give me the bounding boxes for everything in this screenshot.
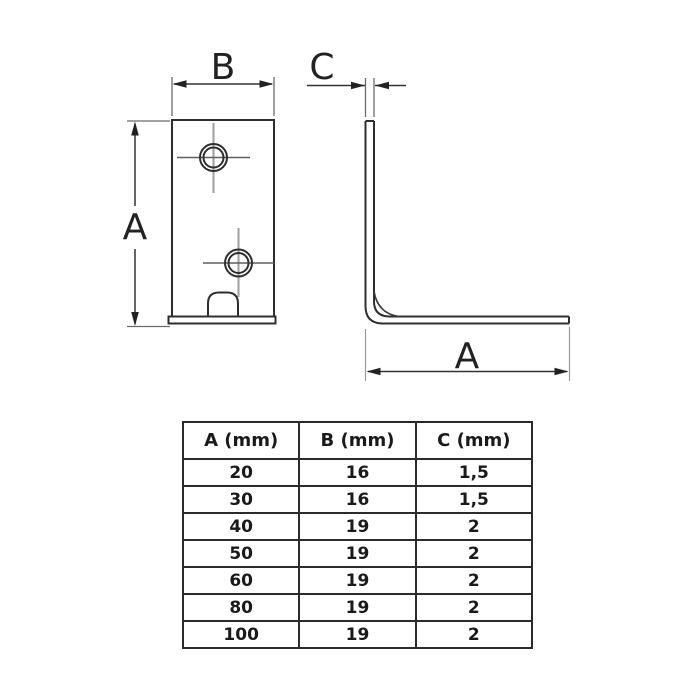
table-row: 80192 xyxy=(183,594,532,621)
table-cell: 19 xyxy=(299,513,415,540)
side-profile-inner xyxy=(374,121,569,317)
dim-c-arrow-left-icon xyxy=(351,82,365,89)
dim-b-label: B xyxy=(211,47,236,88)
table-row: 30161,5 xyxy=(183,486,532,513)
table-cell: 40 xyxy=(183,513,299,540)
table-cell: 19 xyxy=(299,594,415,621)
front-view xyxy=(169,120,276,324)
front-tab-outline xyxy=(208,293,238,317)
table-cell: 2 xyxy=(416,540,532,567)
table-cell: 20 xyxy=(183,459,299,486)
side-view xyxy=(366,121,570,324)
dimensions-table-head: A (mm)B (mm)C (mm) xyxy=(183,422,532,459)
table-cell: 16 xyxy=(299,486,415,513)
table-row: 60192 xyxy=(183,567,532,594)
table-body: 20161,530161,540192501926019280192100192 xyxy=(183,459,532,648)
side-profile-outer xyxy=(366,121,570,324)
table-header-cell: B (mm) xyxy=(299,422,415,459)
dim-b-arrow-right-icon xyxy=(260,80,274,88)
table-header-cell: A (mm) xyxy=(183,422,299,459)
technical-drawing-page: B A xyxy=(0,0,700,700)
table-cell: 80 xyxy=(183,594,299,621)
front-flange-edge xyxy=(169,317,276,324)
table-row: 40192 xyxy=(183,513,532,540)
dim-b-arrow-left-icon xyxy=(173,80,187,88)
dimensions-table: A (mm)B (mm)C (mm) 20161,530161,54019250… xyxy=(182,421,533,649)
table-cell: 2 xyxy=(416,513,532,540)
table-row: 100192 xyxy=(183,621,532,648)
dim-a-front-arrow-down-icon xyxy=(131,312,139,326)
table-header-cell: C (mm) xyxy=(416,422,532,459)
table-cell: 16 xyxy=(299,459,415,486)
dim-c-arrow-right-icon xyxy=(375,82,389,89)
table-cell: 2 xyxy=(416,567,532,594)
table-cell: 19 xyxy=(299,567,415,594)
table-cell: 19 xyxy=(299,621,415,648)
front-plate-outline xyxy=(172,120,274,317)
table-cell: 2 xyxy=(416,594,532,621)
table-row: 20161,5 xyxy=(183,459,532,486)
dim-a-front-label: A xyxy=(123,207,148,248)
dim-a-side-label: A xyxy=(455,336,480,377)
dimension-c: C xyxy=(307,47,406,117)
table-header-row: A (mm)B (mm)C (mm) xyxy=(183,422,532,459)
dim-a-side-arrow-left-icon xyxy=(367,368,381,375)
table-cell: 1,5 xyxy=(416,459,532,486)
dimension-a-side: A xyxy=(366,327,570,381)
dimension-a-front: A xyxy=(123,121,170,327)
dim-a-side-arrow-right-icon xyxy=(555,368,569,375)
table-cell: 30 xyxy=(183,486,299,513)
table-cell: 1,5 xyxy=(416,486,532,513)
table-row: 50192 xyxy=(183,540,532,567)
table-cell: 100 xyxy=(183,621,299,648)
table-cell: 2 xyxy=(416,621,532,648)
table-cell: 60 xyxy=(183,567,299,594)
dim-c-label: C xyxy=(309,47,334,88)
table-cell: 19 xyxy=(299,540,415,567)
table-cell: 50 xyxy=(183,540,299,567)
dimension-b: B xyxy=(172,47,274,116)
dim-a-front-arrow-up-icon xyxy=(131,122,139,136)
